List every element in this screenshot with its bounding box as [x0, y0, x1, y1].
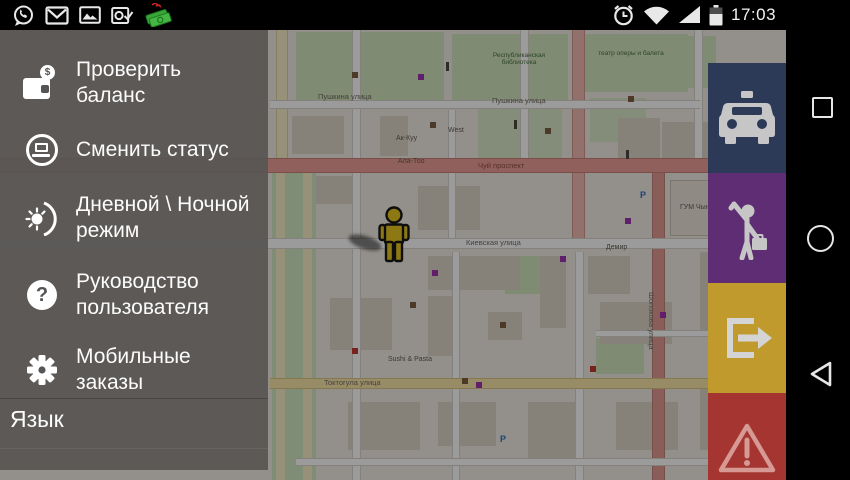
menu-item-day-night[interactable]: Дневной \ Ночной режим [0, 178, 268, 258]
exit-icon [720, 312, 774, 364]
clock-text: 17:03 [731, 5, 776, 25]
exit-button[interactable] [708, 283, 786, 393]
recents-button[interactable] [812, 97, 833, 118]
battery-icon [709, 5, 723, 26]
gmail-icon [45, 6, 69, 25]
wifi-icon [643, 6, 670, 25]
menu-item-language[interactable]: Язык [10, 406, 64, 433]
menu-item-label: Проверить баланс [76, 57, 211, 109]
wallet-icon: $ [22, 65, 62, 101]
money-transfer-icon [144, 3, 172, 27]
taxi-icon [718, 91, 776, 145]
divider [0, 448, 268, 449]
signal-icon [678, 6, 701, 24]
menu-item-label: Мобильные заказы [76, 344, 211, 396]
gallery-icon [79, 6, 101, 24]
home-button[interactable] [807, 225, 834, 252]
menu-item-label: Сменить статус [76, 137, 251, 163]
menu-item-change-status[interactable]: Сменить статус [0, 122, 268, 178]
warning-icon [718, 422, 776, 474]
whatsapp-icon [12, 4, 35, 27]
menu-item-user-guide[interactable]: ? Руководство пользователя [0, 256, 268, 334]
menu-item-label: Дневной \ Ночной режим [76, 192, 266, 244]
menu-item-label: Руководство пользователя [76, 269, 241, 321]
gear-icon [22, 353, 62, 387]
status-icon [22, 134, 62, 166]
android-navbar [786, 0, 850, 480]
alarm-icon [612, 3, 635, 27]
back-button[interactable] [808, 360, 834, 393]
app-screen: Пушкина улицаПушкина улицаЧуй проспектКи… [0, 0, 850, 480]
help-icon: ? [22, 280, 62, 310]
taxi-status-button[interactable] [708, 63, 786, 173]
outlook-icon [111, 6, 134, 25]
warning-button[interactable] [708, 393, 786, 480]
day-night-icon [22, 200, 62, 236]
status-bar: 17:03 [0, 0, 850, 30]
navigation-drawer: $ Проверить баланс Сменить статус [0, 30, 268, 470]
divider [0, 398, 268, 399]
hail-passenger-button[interactable] [708, 173, 786, 283]
hail-passenger-icon [721, 196, 773, 260]
menu-item-check-balance[interactable]: $ Проверить баланс [0, 44, 268, 122]
